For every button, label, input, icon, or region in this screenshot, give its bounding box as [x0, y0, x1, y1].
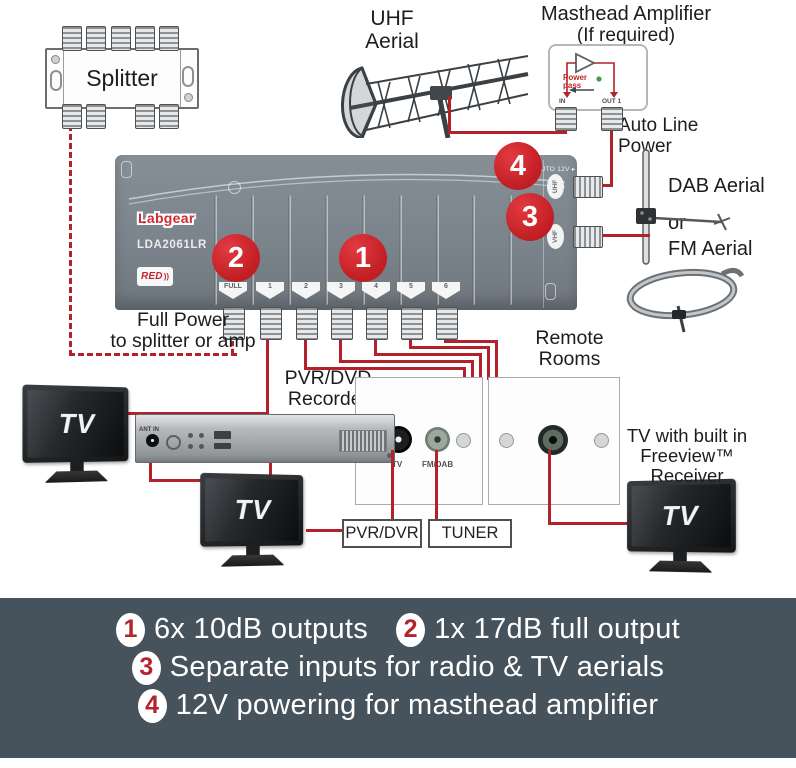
screw-icon [456, 433, 471, 448]
splitter-port [62, 104, 82, 129]
output-2-connector [296, 307, 318, 340]
splitter-box: Splitter [45, 48, 199, 109]
ant-in-socket [146, 434, 159, 447]
port-label-1: 1 [256, 282, 284, 299]
callout-2: 2 [212, 234, 260, 282]
output-6-connector [436, 307, 458, 340]
feature-row-1: 1 6x 10dB outputs 2 1x 17dB full output [116, 611, 680, 648]
remote-rooms-label: RemoteRooms [522, 328, 617, 370]
mount-slot [545, 283, 556, 300]
feature-text-3: Separate inputs for radio & TV aerials [170, 651, 664, 684]
wire-remote-socket-across [548, 522, 632, 525]
screw-hole [228, 181, 241, 194]
callout-1: 1 [339, 234, 387, 282]
wire-remote-socket-down [548, 450, 551, 525]
splitter-divider [180, 50, 181, 107]
feature-number-2: 2 [396, 613, 425, 647]
recorder-knob [166, 435, 181, 450]
feature-number-3: 3 [132, 651, 161, 685]
splitter-port [135, 26, 155, 51]
splitter-port [135, 104, 155, 129]
feature-text-1: 6x 10dB outputs [154, 613, 368, 646]
feature-text-4: 12V powering for masthead amplifier [176, 689, 659, 722]
wire-aerial-down [448, 96, 451, 134]
uhf-input-oval: UHF [547, 174, 564, 199]
splitter-port [86, 104, 106, 129]
dab-aerial-icon [630, 148, 740, 270]
fm-loop-aerial-icon [616, 262, 756, 334]
recorder-slot [214, 443, 231, 449]
wire-tv2-box [306, 529, 344, 532]
vent-grille [339, 430, 387, 452]
red-compliance-badge: RED)) [137, 267, 173, 286]
feature-row-3: 4 12V powering for masthead amplifier [138, 687, 659, 724]
uhf-input-connector [573, 176, 603, 198]
power-pass-label: Powerpass [563, 74, 587, 90]
wire-tv-socket-down [391, 450, 394, 521]
product-diagram: Splitter UHFAerial [0, 0, 796, 768]
tv-1: TV [22, 384, 128, 483]
wire-fmdab-socket-down [435, 450, 438, 521]
tv-3: TV [627, 479, 736, 574]
pvr-dvd-recorder: ANT IN [135, 414, 395, 463]
screw-icon [184, 93, 193, 102]
wall-plate-single [488, 377, 620, 505]
port-label-full: FULL [219, 282, 247, 299]
output-4-connector [366, 307, 388, 340]
recorder-slot [214, 431, 231, 439]
tv-2: TV [200, 473, 303, 567]
masthead-in-connector [555, 107, 577, 131]
masthead-amplifier-box: Powerpass IN OUT 1 [548, 44, 648, 111]
splitter-port [86, 26, 106, 51]
output-3-connector [331, 307, 353, 340]
splitter-divider [63, 50, 64, 107]
screw-icon [594, 433, 609, 448]
screw-icon [499, 433, 514, 448]
callout-3: 3 [506, 193, 554, 241]
feature-row-2: 3 Separate inputs for radio & TV aerials [132, 649, 664, 686]
wire-splitter-dashed-across [69, 353, 237, 356]
pvr-dvr-box: PVR/DVR [342, 519, 422, 548]
tv-socket [538, 425, 568, 455]
splitter-port [159, 104, 179, 129]
vhf-input-connector [573, 226, 603, 248]
mount-hole [50, 70, 62, 91]
splitter-port [111, 26, 131, 51]
uhf-aerial-icon [332, 46, 537, 138]
tuner-box: TUNER [428, 519, 512, 548]
mount-hole [182, 66, 194, 87]
feature-text-2: 1x 17dB full output [434, 613, 680, 646]
output-5-connector [401, 307, 423, 340]
port-label-3: 3 [327, 282, 355, 299]
mount-slot [121, 161, 132, 178]
wire-autoline-down [610, 124, 613, 186]
ant-in-label: ANT IN [139, 427, 159, 433]
model-number: LDA2061LR [137, 239, 207, 251]
labgear-logo: Labgear [138, 210, 195, 226]
fm-dab-socket [425, 427, 450, 452]
wire-vhf-input [600, 234, 650, 237]
port-label-2: 2 [292, 282, 320, 299]
in-label: IN [559, 98, 566, 105]
port-label-4: 4 [362, 282, 390, 299]
feature-banner: 1 6x 10dB outputs 2 1x 17dB full output … [0, 598, 796, 758]
masthead-label: Masthead Amplifier(If required) [500, 4, 752, 46]
wire-splitter-dashed-down [69, 116, 72, 356]
splitter-port [62, 26, 82, 51]
splitter-port [159, 26, 179, 51]
wire-aerial-across [448, 131, 567, 134]
feature-number-1: 1 [116, 613, 145, 647]
splitter-label: Splitter [86, 65, 158, 92]
full-power-label: Full Powerto splitter or amp [88, 310, 278, 352]
masthead-out-connector [601, 107, 623, 131]
freeview-tv-label: TV with built inFreeview™Receiver [612, 426, 762, 486]
screw-icon [51, 55, 60, 64]
out1-label: OUT 1 [602, 98, 621, 105]
callout-4: 4 [494, 142, 542, 190]
feature-number-4: 4 [138, 689, 167, 723]
